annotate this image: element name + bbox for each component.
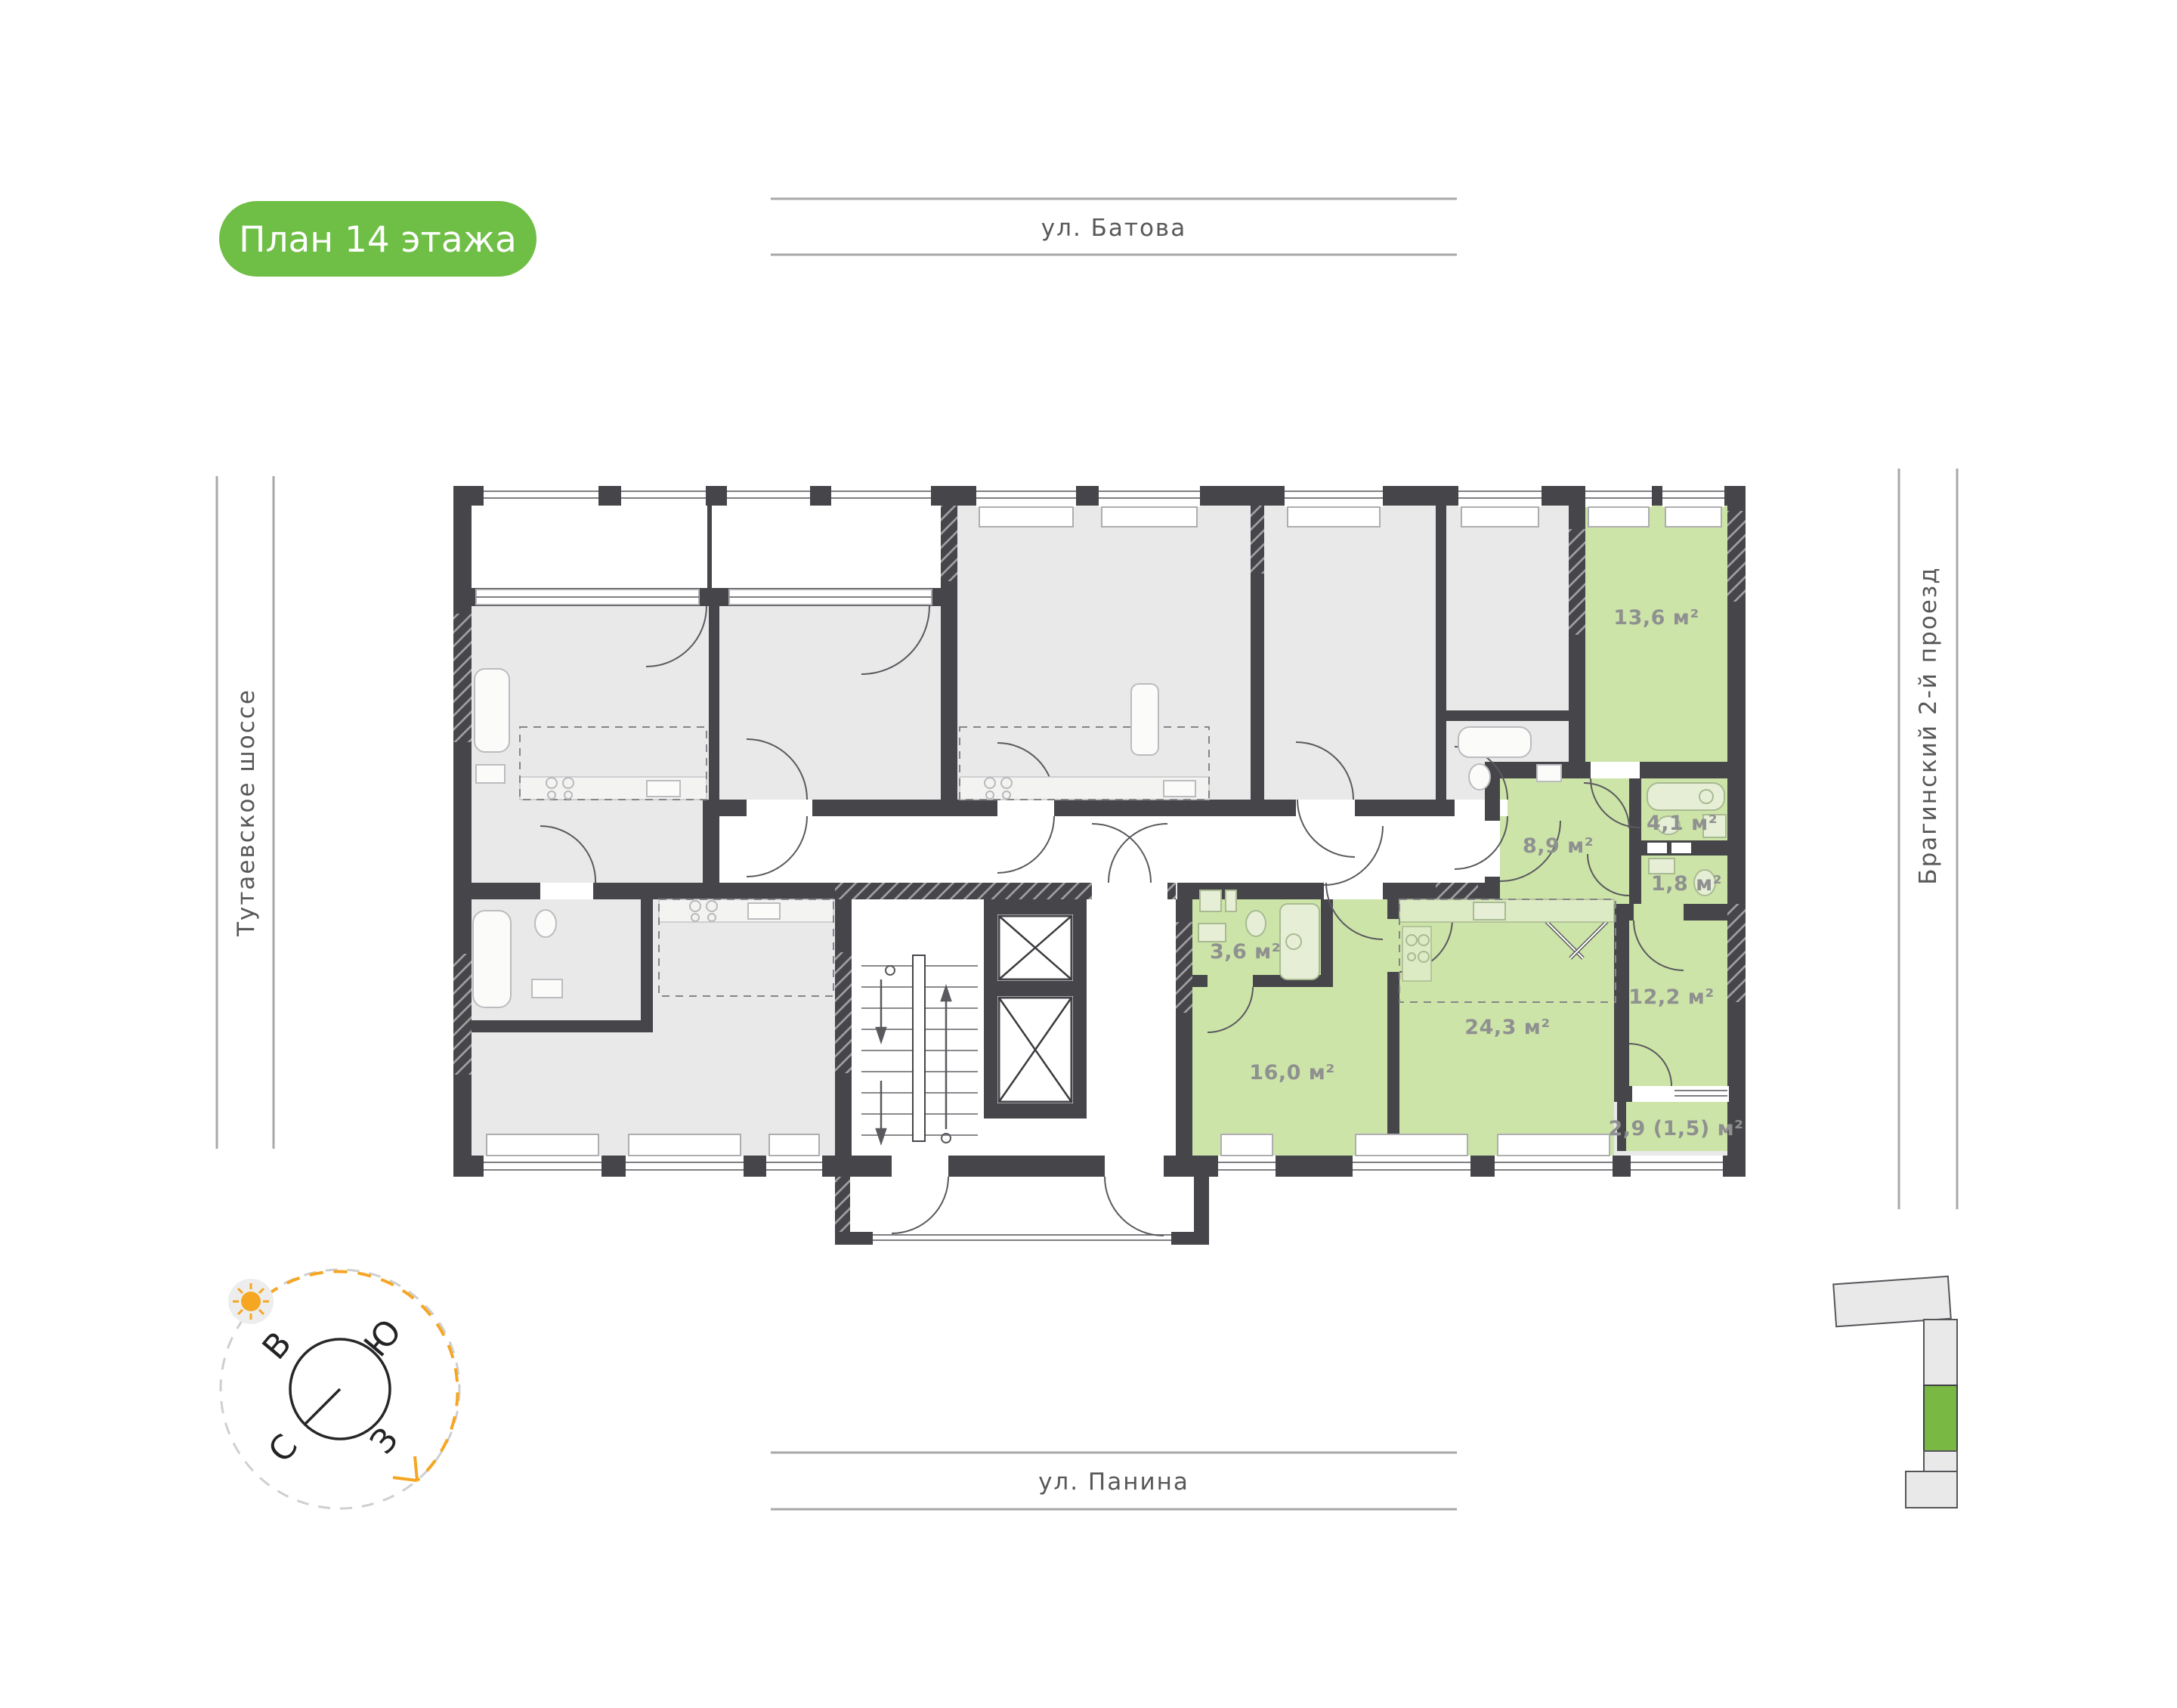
elevator-shaft	[999, 998, 1071, 1102]
wall	[461, 1020, 653, 1032]
wall	[641, 883, 653, 1020]
hatched-wall	[835, 952, 852, 1073]
site-plan-thumbnail	[1833, 1276, 1957, 1508]
site-plan-section-lower	[1924, 1451, 1957, 1471]
window	[1218, 1156, 1276, 1178]
door-gap	[1387, 919, 1399, 972]
door-gap	[747, 800, 812, 816]
window	[727, 484, 810, 507]
wall	[1629, 778, 1641, 904]
window	[626, 1156, 744, 1178]
window	[1458, 484, 1542, 507]
door-gap	[1324, 883, 1383, 899]
window	[1662, 484, 1724, 507]
door-gap	[540, 883, 593, 899]
floor-plan-canvas: План 14 этажа ул. Батова ул. Панина Тута…	[0, 0, 2177, 1708]
door-gap	[1208, 975, 1253, 987]
street-right-label: Брагинский 2-й проезд	[1915, 566, 1942, 884]
room-area-label: 16,0 м²	[1249, 1061, 1334, 1085]
apartment-area-room-13-6	[1585, 504, 1729, 762]
wall	[1446, 710, 1569, 721]
hatched-wall	[1251, 506, 1264, 574]
door-gap	[997, 800, 1054, 816]
window	[831, 484, 931, 507]
hatched-wall	[941, 506, 957, 581]
compass-north-label: С	[261, 1428, 305, 1470]
door-gap	[1591, 762, 1640, 778]
compass-east-label: В	[255, 1325, 299, 1367]
window	[484, 1156, 601, 1178]
window	[1585, 484, 1652, 507]
window	[976, 484, 1076, 507]
room-area-label: 4,1 м²	[1647, 812, 1718, 835]
room-area-label: 12,2 м²	[1628, 986, 1714, 1009]
room-area-label: 3,6 м²	[1210, 940, 1281, 964]
hatched-wall	[453, 614, 472, 742]
elevator-shaft	[999, 916, 1071, 979]
floor-badge: План 14 этажа	[219, 201, 537, 277]
balcony-divider	[707, 499, 712, 591]
site-plan-wing-bottom	[1906, 1471, 1957, 1508]
door-gap	[892, 1156, 948, 1177]
elevator-bank	[984, 899, 1087, 1119]
window	[766, 1156, 822, 1178]
site-plan-section-highlighted[interactable]	[1924, 1385, 1957, 1451]
room-area-label: 1,8 м²	[1651, 872, 1722, 896]
shaft-opening	[1671, 843, 1691, 853]
site-plan-section-upper	[1924, 1320, 1957, 1385]
room-area-label: 24,3 м²	[1464, 1016, 1550, 1039]
stair-stringer	[913, 955, 925, 1141]
street-bottom-label: ул. Панина	[1038, 1468, 1189, 1496]
window	[1285, 484, 1383, 507]
street-left: Тутаевское шоссе	[217, 476, 274, 1149]
street-left-label: Тутаевское шоссе	[233, 688, 260, 937]
window	[1353, 1156, 1470, 1178]
room-area-label: 13,6 м²	[1613, 606, 1699, 630]
street-bottom: ул. Панина	[771, 1453, 1457, 1509]
window	[484, 484, 598, 507]
door-gap	[1634, 904, 1684, 921]
corridor	[719, 816, 1485, 883]
floor-plan-page: План 14 этажа ул. Батова ул. Панина Тута…	[0, 0, 2177, 1708]
street-top: ул. Батова	[771, 199, 1457, 255]
room-area-label: 2,9 (1,5) м²	[1608, 1117, 1743, 1140]
room-area-label: 8,9 м²	[1523, 834, 1594, 858]
door-gap	[1296, 800, 1355, 816]
balcony-band	[470, 504, 941, 589]
hatched-wall	[1727, 511, 1746, 602]
hatched-wall	[1176, 922, 1192, 1013]
hatched-wall	[453, 954, 472, 1075]
wall	[709, 606, 719, 800]
shaft-opening	[1647, 843, 1667, 853]
street-top-label: ул. Батова	[1041, 215, 1186, 242]
door-gap	[1485, 821, 1500, 877]
corridor-wall	[719, 800, 1485, 816]
street-right: Брагинский 2-й проезд	[1899, 469, 1957, 1209]
window	[1631, 1156, 1723, 1178]
window	[1495, 1156, 1613, 1178]
door-gap	[1092, 883, 1167, 899]
door-gap	[1105, 1156, 1164, 1177]
entrance-vestibule	[850, 1177, 1194, 1232]
hatched-wall	[1436, 883, 1478, 899]
window	[621, 484, 706, 507]
wall	[1436, 506, 1446, 800]
building-floor-plan: 13,6 м² 4,1 м² 8,9 м² 1,8 м² 12,2 м² 2,9…	[453, 484, 1746, 1245]
hatched-wall	[1727, 904, 1746, 1002]
hatched-wall	[1569, 529, 1585, 635]
compass-arrowhead	[393, 1456, 417, 1481]
window	[1099, 484, 1200, 507]
floor-badge-label: План 14 этажа	[239, 219, 517, 261]
wall	[1321, 899, 1333, 975]
compass: В Ю С З	[221, 1270, 459, 1508]
sun-icon	[228, 1279, 274, 1324]
